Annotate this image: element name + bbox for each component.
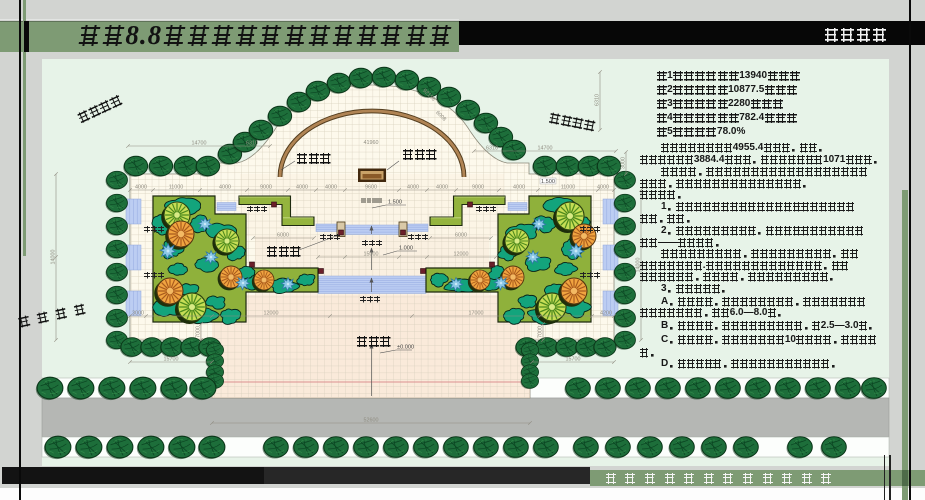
svg-text:4000: 4000 xyxy=(436,185,448,191)
svg-text:1.500: 1.500 xyxy=(541,179,555,185)
svg-text:4000: 4000 xyxy=(597,185,609,191)
svg-text:14000: 14000 xyxy=(51,250,57,265)
svg-text:6000: 6000 xyxy=(277,233,289,239)
svg-text:1.500: 1.500 xyxy=(388,200,402,206)
svg-text:41960: 41960 xyxy=(364,140,379,146)
svg-text:9600: 9600 xyxy=(365,185,377,191)
svg-text:11000: 11000 xyxy=(561,185,576,191)
svg-text:7000: 7000 xyxy=(538,326,544,338)
svg-text:4000: 4000 xyxy=(219,185,231,191)
svg-text:6310: 6310 xyxy=(486,146,498,152)
svg-text:4000: 4000 xyxy=(325,185,337,191)
svg-text:3000: 3000 xyxy=(132,311,144,317)
svg-text:6000: 6000 xyxy=(455,233,467,239)
svg-text:4000: 4000 xyxy=(407,185,419,191)
svg-text:6310: 6310 xyxy=(595,94,601,106)
svg-text:3000: 3000 xyxy=(621,157,627,169)
svg-text:15700: 15700 xyxy=(164,357,179,363)
svg-text:12000: 12000 xyxy=(454,252,469,258)
svg-text:4000: 4000 xyxy=(513,185,525,191)
svg-text:15700: 15700 xyxy=(566,357,581,363)
svg-text:15000: 15000 xyxy=(364,252,379,258)
svg-text:14700: 14700 xyxy=(192,141,207,147)
svg-text:14700: 14700 xyxy=(538,146,553,152)
svg-text:4200: 4200 xyxy=(600,311,612,317)
svg-text:1.000: 1.000 xyxy=(399,246,413,252)
svg-text:4000: 4000 xyxy=(296,185,308,191)
svg-text:7000: 7000 xyxy=(196,326,202,338)
svg-text:9000: 9000 xyxy=(260,185,272,191)
svg-text:11000: 11000 xyxy=(169,185,184,191)
svg-text:17000: 17000 xyxy=(469,311,484,317)
svg-text:12000: 12000 xyxy=(264,311,279,317)
svg-text:4000: 4000 xyxy=(135,185,147,191)
svg-text:6310: 6310 xyxy=(246,141,258,147)
svg-text:52600: 52600 xyxy=(364,418,379,424)
svg-text:±0.000: ±0.000 xyxy=(397,345,414,351)
svg-text:9000: 9000 xyxy=(472,185,484,191)
